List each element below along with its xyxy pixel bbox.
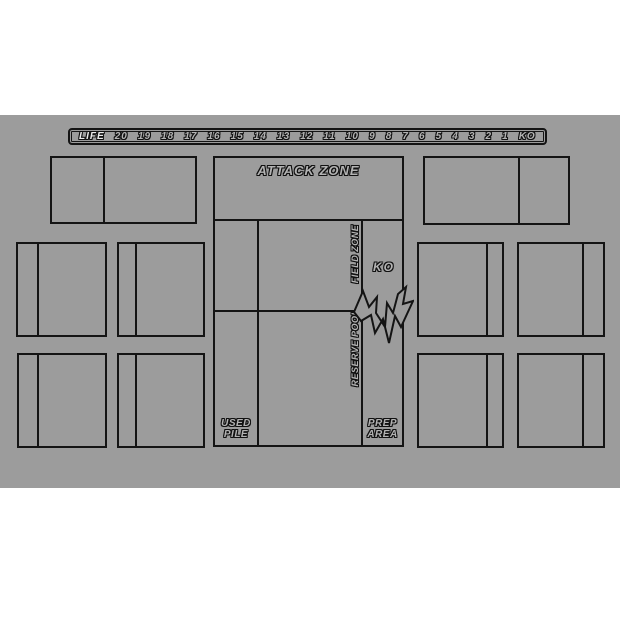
life-value-7[interactable]: 7	[402, 131, 409, 142]
card-slot-top-right[interactable]	[423, 156, 570, 225]
card-slot-left-mid-2[interactable]	[117, 242, 205, 337]
field-zone[interactable]	[259, 221, 361, 310]
used-pile-zone[interactable]	[215, 221, 257, 445]
reserve-pool-zone[interactable]	[259, 312, 361, 445]
card-slot-divider	[103, 158, 105, 222]
prep-area-label-line2: AREA	[363, 429, 402, 440]
prep-area-label: PREP AREA	[363, 418, 402, 440]
used-pile-label: USED PILE	[215, 418, 257, 440]
life-value-8[interactable]: 8	[386, 131, 393, 142]
prep-area-label-line1: PREP	[363, 418, 402, 429]
card-slot-divider	[486, 355, 488, 446]
ko-zone-label: KO	[373, 260, 395, 274]
life-value-1[interactable]: 1	[502, 131, 509, 142]
card-slot-left-mid-1[interactable]	[16, 242, 107, 337]
life-value-9[interactable]: 9	[369, 131, 376, 142]
attack-zone[interactable]: ATTACK ZONE	[215, 158, 402, 219]
life-value-4[interactable]: 4	[452, 131, 459, 142]
life-track[interactable]: LIFE 20 19 18 17 16 15 14 13 12 11 10 9 …	[68, 128, 547, 145]
card-slot-right-mid-2[interactable]	[517, 242, 605, 337]
life-value-10[interactable]: 10	[346, 131, 359, 142]
playmat: LIFE 20 19 18 17 16 15 14 13 12 11 10 9 …	[0, 115, 620, 488]
card-slot-divider	[518, 158, 520, 223]
life-value-ko[interactable]: KO	[519, 131, 536, 142]
life-value-11[interactable]: 11	[323, 131, 335, 142]
life-value-17[interactable]: 17	[184, 131, 197, 142]
card-slot-divider	[135, 244, 137, 335]
life-value-13[interactable]: 13	[277, 131, 290, 142]
explosion-burst-icon	[354, 282, 414, 346]
card-slot-divider	[37, 355, 39, 446]
card-slot-right-bottom-2[interactable]	[517, 353, 605, 448]
life-value-18[interactable]: 18	[161, 131, 174, 142]
life-value-19[interactable]: 19	[138, 131, 151, 142]
life-value-15[interactable]: 15	[231, 131, 244, 142]
life-value-20[interactable]: 20	[115, 131, 128, 142]
life-value-6[interactable]: 6	[419, 131, 426, 142]
card-slot-divider	[486, 244, 488, 335]
used-pile-label-line1: USED	[215, 418, 257, 429]
card-slot-left-bottom-2[interactable]	[117, 353, 205, 448]
attack-zone-label: ATTACK ZONE	[215, 163, 402, 178]
life-track-label: LIFE	[79, 131, 105, 142]
card-slot-right-mid-1[interactable]	[417, 242, 504, 337]
card-slot-divider	[135, 355, 137, 446]
center-play-area: ATTACK ZONE FIELD ZONE RESERVE POOL USED…	[213, 156, 404, 447]
life-value-12[interactable]: 12	[300, 131, 313, 142]
card-slot-divider	[582, 355, 584, 446]
life-value-14[interactable]: 14	[254, 131, 267, 142]
card-slot-divider	[37, 244, 39, 335]
life-value-16[interactable]: 16	[207, 131, 220, 142]
field-zone-label: FIELD ZONE	[350, 225, 360, 284]
life-value-5[interactable]: 5	[436, 131, 443, 142]
card-slot-left-bottom-1[interactable]	[17, 353, 107, 448]
used-pile-label-line2: PILE	[215, 429, 257, 440]
card-slot-top-left[interactable]	[50, 156, 197, 224]
life-value-2[interactable]: 2	[485, 131, 492, 142]
card-slot-divider	[582, 244, 584, 335]
card-slot-right-bottom-1[interactable]	[417, 353, 504, 448]
life-value-3[interactable]: 3	[469, 131, 476, 142]
